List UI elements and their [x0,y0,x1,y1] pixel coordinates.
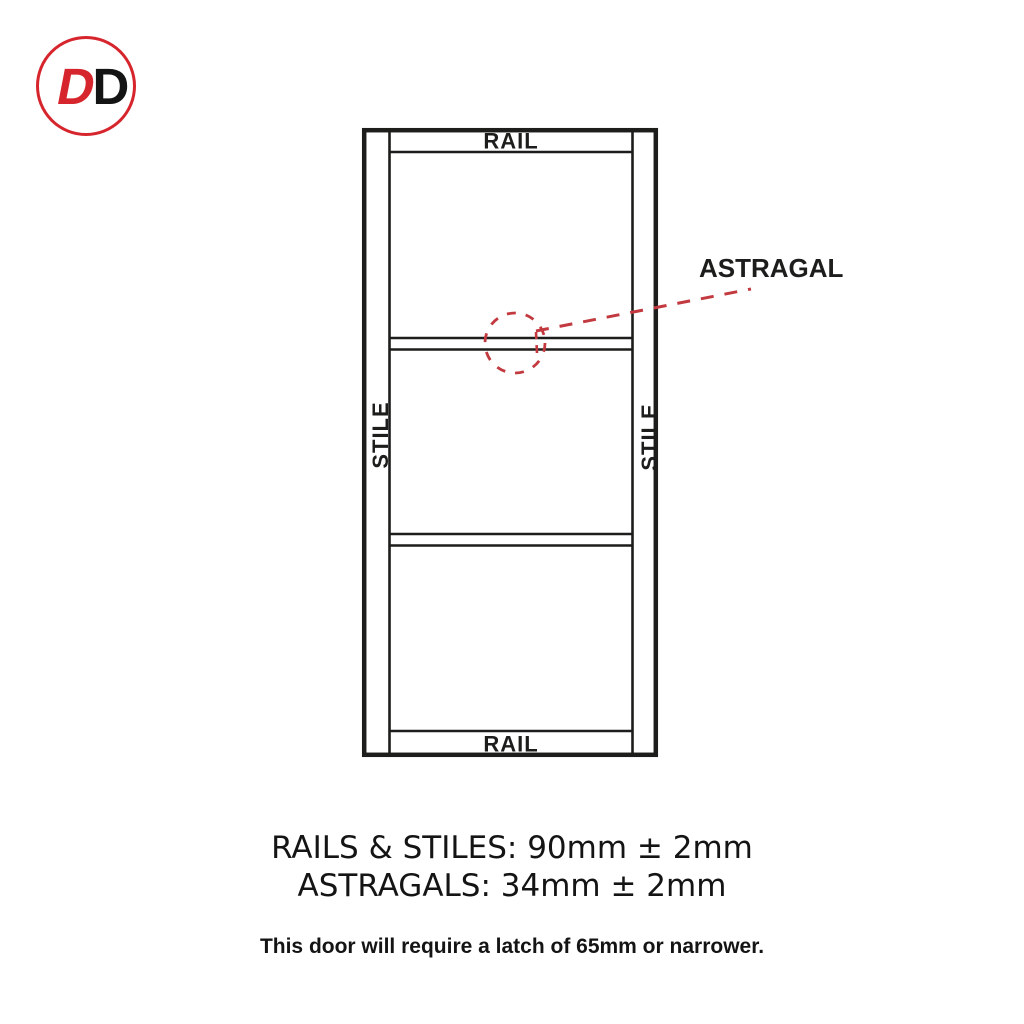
door-outer-frame [364,130,656,755]
astragal-leader-line [536,289,751,331]
astragal-callout-tick [536,332,537,353]
spec-text-block: RAILS & STILES: 90mm ± 2mm ASTRAGALS: 34… [0,829,1024,905]
latch-note: This door will require a latch of 65mm o… [0,934,1024,960]
top-rail-label: RAIL [483,129,538,154]
astragal-label: ASTRAGAL [699,253,844,283]
rails-stiles-spec: RAILS & STILES: 90mm ± 2mm [0,829,1024,867]
astragal-callout [485,289,751,373]
door-frame [364,130,656,755]
astragals-spec: ASTRAGALS: 34mm ± 2mm [0,867,1024,905]
page-canvas: D D RAIL RAIL STILE [0,0,1024,1024]
bottom-rail-label: RAIL [483,732,538,757]
left-stile-label: STILE [368,401,393,468]
right-stile-label: STILE [637,403,662,470]
astragal-highlight-circle [485,313,545,373]
diagram-labels: RAIL RAIL STILE STILE ASTRAGAL [368,129,844,757]
